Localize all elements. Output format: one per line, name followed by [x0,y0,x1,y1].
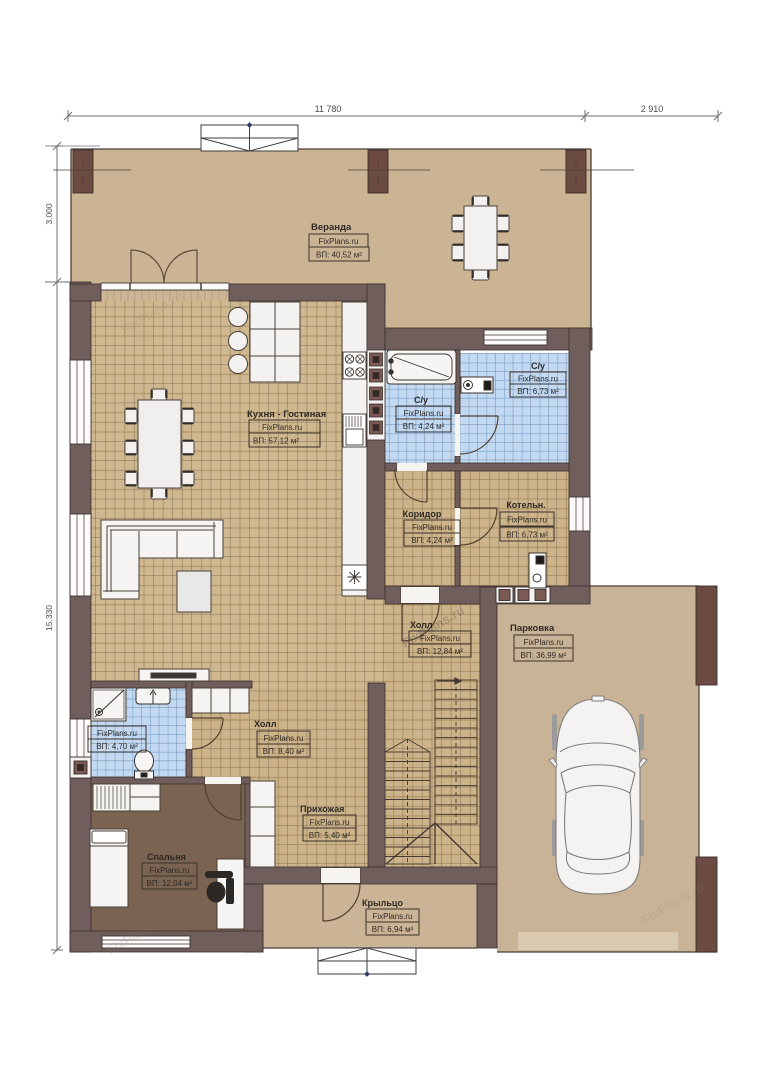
svg-text:ВП: 5,40 м²: ВП: 5,40 м² [309,831,351,840]
svg-text:Холл: Холл [410,620,433,630]
svg-text:FixPlans.ru: FixPlans.ru [262,423,302,432]
svg-text:FixPlans.ru: FixPlans.ru [263,734,303,743]
svg-text:ВП: 12,84 м²: ВП: 12,84 м² [417,647,463,656]
svg-text:FixPlans.ru: FixPlans.ru [97,729,137,738]
svg-text:Кухня - Гостиная: Кухня - Гостиная [247,409,326,420]
svg-text:Котельн.: Котельн. [506,500,545,510]
svg-text:Коридор: Коридор [403,509,442,519]
svg-text:Прихожая: Прихожая [300,804,344,814]
svg-text:ВП: 8,40 м²: ВП: 8,40 м² [263,747,305,756]
svg-text:FixPlans.ru: FixPlans.ru [318,237,358,246]
svg-text:FixPlans.ru: FixPlans.ru [309,818,349,827]
svg-text:FixPlans.ru: FixPlans.ru [420,634,460,643]
svg-text:FixPlans.ru: FixPlans.ru [518,375,558,384]
svg-text:ВП: 57,12 м²: ВП: 57,12 м² [253,437,299,446]
svg-text:FixPlans.ru: FixPlans.ru [507,516,547,525]
svg-text:Холл: Холл [254,719,277,729]
svg-text:FixPlans.ru: FixPlans.ru [149,866,189,875]
svg-text:FixPlans.ru: FixPlans.ru [412,523,452,532]
svg-text:ВП: 12,04 м²: ВП: 12,04 м² [147,879,193,888]
svg-text:Крыльцо: Крыльцо [362,898,403,908]
svg-text:ВП: 6,73 м²: ВП: 6,73 м² [506,531,548,540]
svg-text:11 780: 11 780 [315,104,342,114]
svg-text:С/у: С/у [414,395,428,405]
svg-text:Веранда: Веранда [311,222,352,233]
svg-text:FixPlans.ru: FixPlans.ru [372,912,412,921]
svg-text:ВП: 4,24 м²: ВП: 4,24 м² [403,422,445,431]
svg-text:FixPlans.ru: FixPlans.ru [403,409,443,418]
svg-text:3.000: 3.000 [44,203,54,225]
svg-text:Парковка: Парковка [510,623,555,634]
svg-text:ВП: 6,94 м²: ВП: 6,94 м² [372,925,414,934]
svg-text:FixPlans.ru: FixPlans.ru [523,638,563,647]
svg-text:ВП: 4,24 м²: ВП: 4,24 м² [411,536,453,545]
svg-text:С/у: С/у [531,361,545,371]
svg-text:2 910: 2 910 [641,104,664,114]
svg-text:ВП: 6,73 м²: ВП: 6,73 м² [517,387,559,396]
svg-text:ВП: 36,99 м²: ВП: 36,99 м² [521,651,567,660]
svg-text:ВП: 40,52 м²: ВП: 40,52 м² [316,251,362,260]
svg-text:15.330: 15.330 [44,605,54,631]
svg-text:Спальня: Спальня [147,852,186,862]
svg-text:ВП: 4,70 м²: ВП: 4,70 м² [96,742,138,751]
